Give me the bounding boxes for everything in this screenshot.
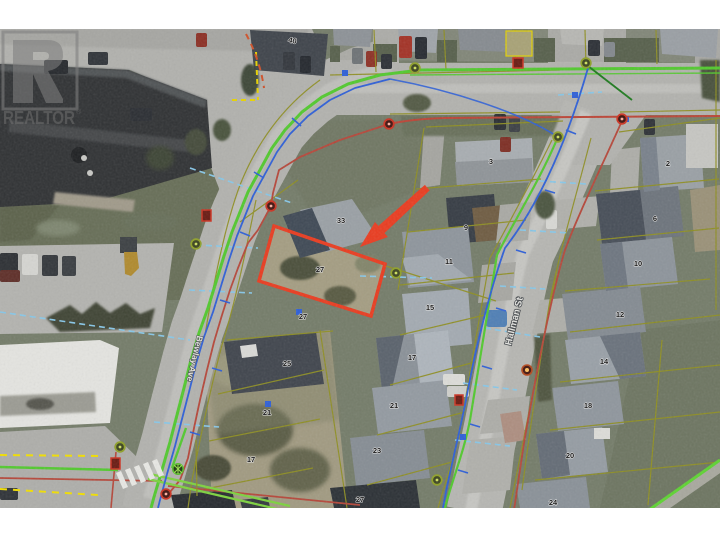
svg-text:REALTOR: REALTOR: [3, 107, 75, 128]
svg-text:®: ®: [76, 108, 82, 116]
